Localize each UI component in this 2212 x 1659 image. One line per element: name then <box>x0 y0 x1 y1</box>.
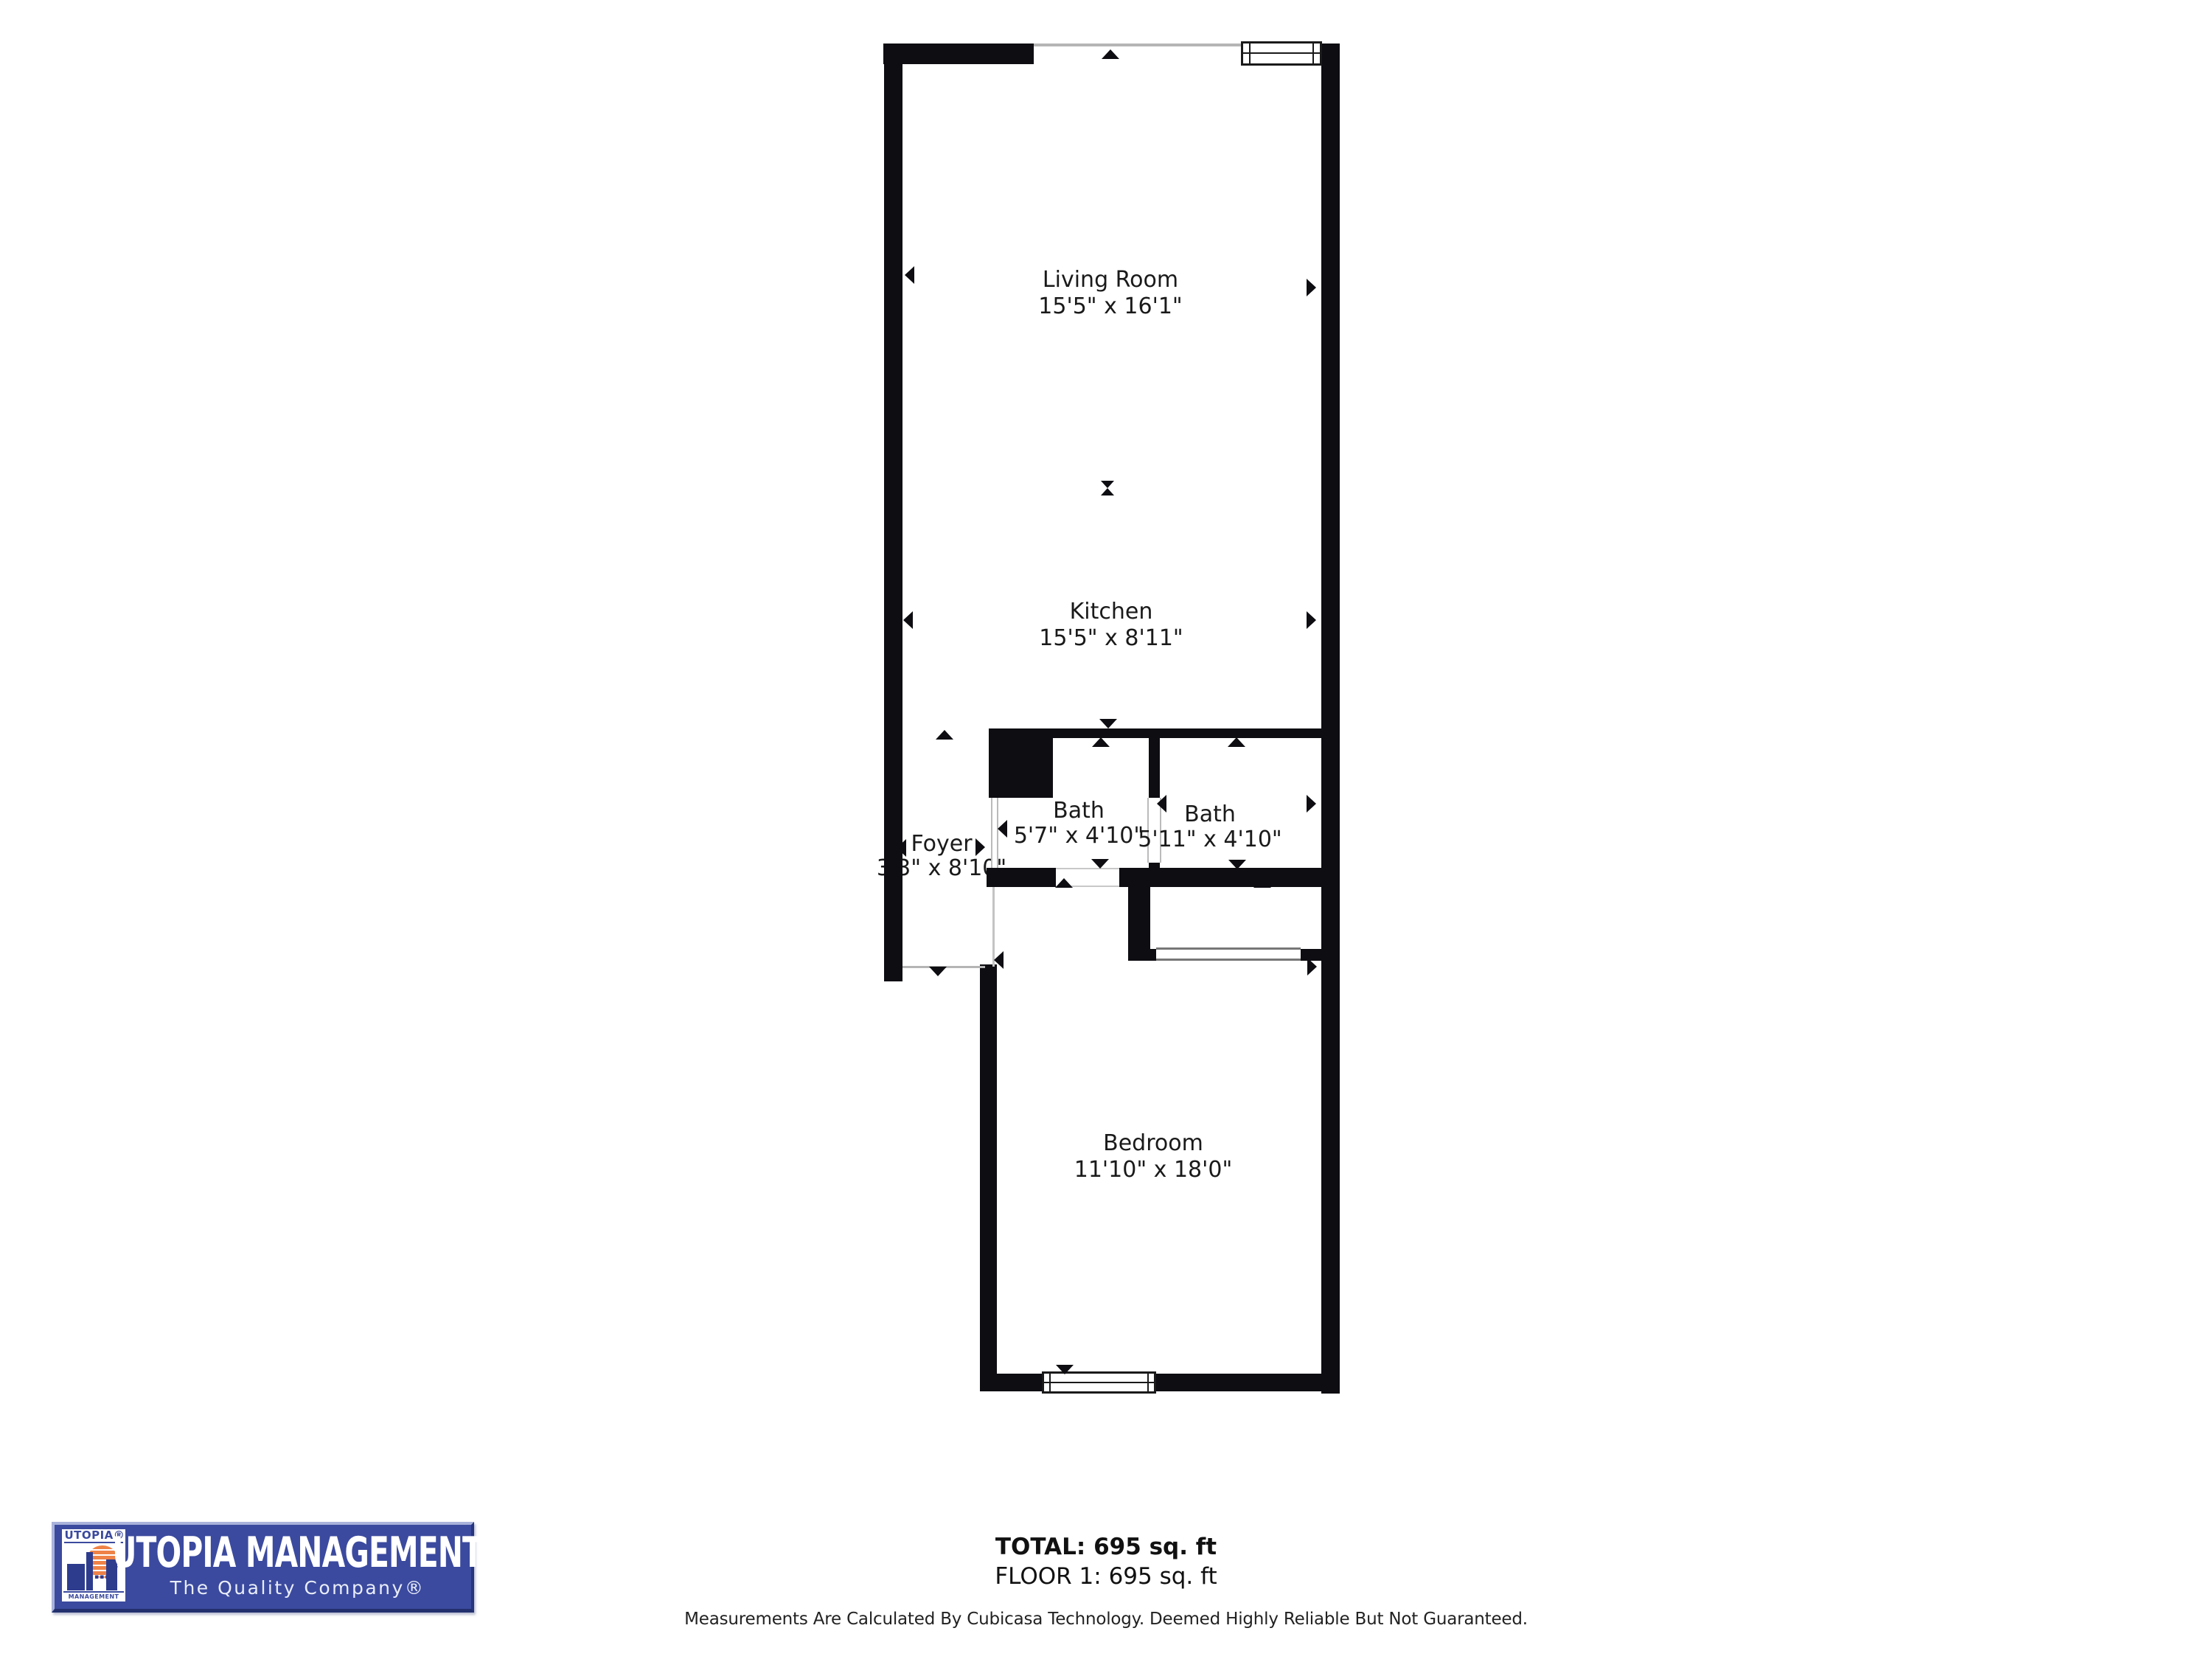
arrow-left-foyer <box>897 839 906 857</box>
wall-bath-bottom-left <box>987 868 1056 887</box>
closet-sliding-door <box>1156 947 1301 961</box>
arrow-left-kitchen <box>903 611 913 629</box>
utopia-management-logo: UTOPIA® ▪▪▪ MANAGEMENT UTOPIA MANAGEMENT… <box>52 1522 474 1613</box>
wall-top-left <box>883 44 1034 64</box>
arrow-up-hall-door <box>1055 878 1073 888</box>
arrow-right-kitchen <box>1307 611 1316 629</box>
room-name: Living Room <box>1038 267 1182 293</box>
arrow-up-bath2 <box>1228 737 1245 747</box>
wall-bath-divider-lower <box>1149 863 1160 872</box>
window-cap <box>1147 1374 1149 1391</box>
brand-tagline: The Quality Company® <box>170 1577 425 1599</box>
arrow-right-bedroom-top <box>1307 958 1317 975</box>
window-cap <box>1049 1374 1051 1391</box>
arrow-up-foyer <box>936 730 953 740</box>
arrow-down-foyer-exit <box>929 967 947 976</box>
window-pane-line <box>1243 52 1320 54</box>
arrow-up-bath1 <box>1092 737 1110 747</box>
arrow-right-bath2 <box>1307 795 1316 813</box>
room-label-bath-2: Bath 5'11" x 4'10" <box>1138 802 1281 852</box>
arrow-left-bedroom-top <box>994 951 1004 969</box>
building-icon <box>67 1564 85 1590</box>
arrow-down-bedroom-window <box>1056 1365 1074 1374</box>
room-label-bedroom: Bedroom 11'10" x 18'0" <box>1074 1130 1233 1183</box>
wall-bedroom-bottom-left <box>980 1374 1043 1391</box>
arrow-bowtie-bottom <box>1101 488 1114 495</box>
arrow-bowtie-top <box>1101 481 1114 488</box>
logo-text-area: UTOPIA MANAGEMENT The Quality Company® <box>128 1525 467 1609</box>
room-label-kitchen: Kitchen 15'5" x 8'11" <box>1039 599 1183 652</box>
wall-closet-bottom-left <box>1128 949 1156 961</box>
arrow-down-kitchen <box>1099 719 1117 728</box>
arrow-left-bath1 <box>998 820 1007 838</box>
room-dims: 5'7" x 4'10" <box>1014 824 1144 849</box>
window-cap <box>1249 44 1251 63</box>
wall-bedroom-left <box>980 964 997 1391</box>
room-label-bath-1: Bath 5'7" x 4'10" <box>1014 799 1144 849</box>
window-cap <box>1312 44 1314 63</box>
arrow-right-living <box>1307 279 1316 296</box>
room-dims: 15'5" x 8'11" <box>1039 625 1183 652</box>
room-name: Bath <box>1138 802 1281 827</box>
arrow-down-bath2 <box>1228 860 1246 869</box>
entry-opening-line <box>1034 44 1242 46</box>
arrow-right-foyer <box>975 838 985 856</box>
wall-bath-divider-upper <box>1149 738 1160 798</box>
building-icon <box>86 1552 93 1590</box>
disclaimer-text: Measurements Are Calculated By Cubicasa … <box>684 1610 1528 1629</box>
floor-area-text: FLOOR 1: 695 sq. ft <box>995 1563 1217 1590</box>
brand-name: UTOPIA MANAGEMENT <box>113 1532 483 1574</box>
window-dots-icon: ▪▪▪ <box>94 1573 110 1581</box>
room-name: Kitchen <box>1039 599 1183 625</box>
window-pane-line <box>1044 1382 1154 1383</box>
badge-management-text: MANAGEMENT <box>63 1591 125 1601</box>
room-label-living-room: Living Room 15'5" x 16'1" <box>1038 267 1182 320</box>
room-name: Bedroom <box>1074 1130 1233 1157</box>
utility-block <box>989 728 1053 798</box>
total-area-text: TOTAL: 695 sq. ft <box>995 1534 1217 1560</box>
room-dims: 15'5" x 16'1" <box>1038 293 1182 320</box>
arrow-up-entry <box>1102 49 1119 59</box>
wall-bedroom-bottom-right <box>1155 1374 1337 1391</box>
room-name: Bath <box>1014 799 1144 824</box>
kitchen-window <box>1241 41 1322 66</box>
floorplan-canvas: Living Room 15'5" x 16'1" Kitchen 15'5" … <box>0 0 2212 1659</box>
wall-right-exterior <box>1321 44 1340 1394</box>
room-dims: 5'11" x 4'10" <box>1138 827 1281 852</box>
arrow-up-closet <box>1253 878 1271 888</box>
arrow-left-living <box>905 266 914 284</box>
arrow-down-bath1 <box>1091 859 1109 869</box>
room-dims: 11'10" x 18'0" <box>1074 1157 1233 1183</box>
bedroom-window <box>1042 1371 1156 1394</box>
